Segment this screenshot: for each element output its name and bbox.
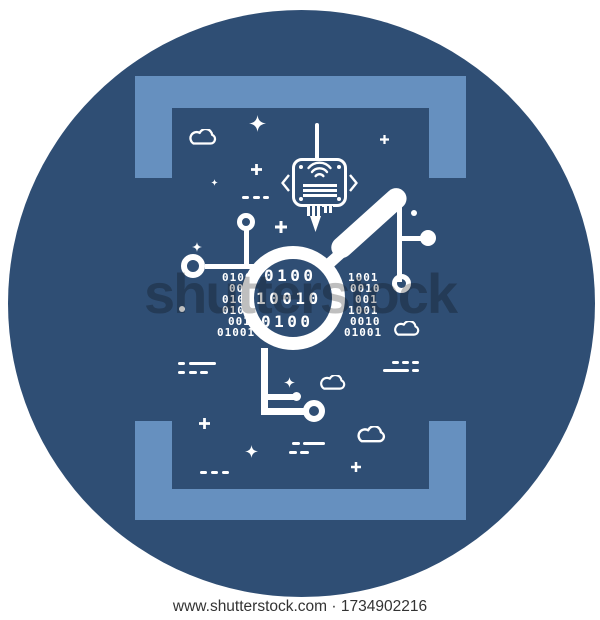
plus-sparkle-icon xyxy=(380,135,389,144)
dash-decoration xyxy=(392,361,399,364)
dash-decoration xyxy=(292,442,300,445)
mount-tab-icon xyxy=(281,174,290,192)
scan-frame-bottom-bar xyxy=(135,489,466,520)
sensor-slot-bar xyxy=(303,189,337,193)
mount-tab-icon xyxy=(349,174,358,192)
dash-decoration xyxy=(178,371,185,374)
plus-sparkle-icon xyxy=(275,221,287,233)
dash-decoration xyxy=(200,371,208,374)
wifi-icon xyxy=(301,161,338,180)
scan-frame-bottom-left-leg xyxy=(135,421,172,489)
plus-sparkle-icon xyxy=(251,164,262,175)
connector-plug-icon xyxy=(307,206,322,216)
sparkle-icon xyxy=(284,377,295,388)
dash-decoration xyxy=(222,471,229,474)
sparkle-icon xyxy=(192,242,202,252)
sparkle-icon xyxy=(211,179,218,186)
cloud-icon xyxy=(317,375,347,391)
circuit-node-icon xyxy=(292,392,301,401)
cloud-icon xyxy=(354,426,387,444)
dash-decoration xyxy=(300,451,309,454)
plus-sparkle-icon xyxy=(351,462,361,472)
dash-decoration xyxy=(200,471,207,474)
circuit-node-icon xyxy=(420,230,436,246)
dash-decoration xyxy=(211,471,218,474)
dash-decoration xyxy=(383,369,409,372)
dash-decoration xyxy=(412,369,419,372)
sparkle-icon xyxy=(245,445,258,458)
dot-decoration xyxy=(411,210,417,216)
dash-decoration xyxy=(289,451,297,454)
dash-decoration xyxy=(189,371,197,374)
watermark-text: shutterstock xyxy=(0,266,600,322)
screw-dot-icon xyxy=(337,197,341,201)
sensor-slot-bar xyxy=(303,184,337,188)
probe-needle-icon xyxy=(309,216,322,233)
dash-decoration xyxy=(402,361,409,364)
plus-sparkle-icon xyxy=(199,418,210,429)
connector-plug-icon xyxy=(324,206,333,213)
dash-decoration xyxy=(253,196,260,199)
circuit-line xyxy=(261,408,308,415)
scan-frame-top-left-leg xyxy=(135,108,172,178)
sparkle-icon xyxy=(249,115,266,132)
binary-text: 01001 xyxy=(344,327,382,338)
scan-frame-top-right-leg xyxy=(429,108,466,178)
dash-decoration xyxy=(242,196,249,199)
circuit-line xyxy=(261,348,268,415)
dash-decoration xyxy=(263,196,269,199)
scan-frame-bottom-right-leg xyxy=(429,421,466,489)
dash-decoration xyxy=(412,361,419,364)
dash-decoration xyxy=(189,362,216,365)
antenna-icon xyxy=(315,123,319,161)
dash-decoration xyxy=(303,442,325,445)
stock-image-canvas: 0100 001 010 010 001 01001 1001 0010 001… xyxy=(0,0,600,620)
sensor-slot-bar xyxy=(303,194,337,198)
cloud-icon xyxy=(186,129,218,146)
dash-decoration xyxy=(178,362,185,365)
watermark-caption: www.shutterstock.com · 1734902216 xyxy=(0,598,600,616)
scan-frame-top-bar xyxy=(135,76,466,108)
binary-text: 01001 xyxy=(217,327,255,338)
circuit-line xyxy=(265,394,295,400)
circuit-node-icon xyxy=(303,400,325,422)
screw-dot-icon xyxy=(299,197,303,201)
